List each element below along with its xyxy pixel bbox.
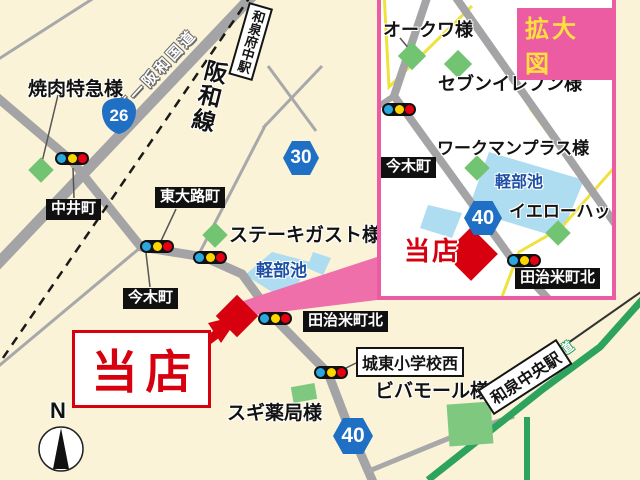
landmark-label-yellow-hat: イエローハット様 bbox=[509, 197, 616, 222]
traffic-light-icon bbox=[507, 254, 541, 267]
store-callout-box: 当店 bbox=[72, 330, 211, 408]
inset-route40-number: 40 bbox=[472, 207, 494, 230]
access-map: N 26 30 40 中井町 東大路町 今木町 田治米町北 和泉府中駅 城東小学… bbox=[0, 0, 640, 480]
inset-title: 拡大図 bbox=[517, 8, 612, 80]
inset-town-label-tajimecho-kita: 田治米町北 bbox=[515, 268, 600, 289]
inset-town-label-imakicho: 今木町 bbox=[381, 157, 436, 178]
landmark-label-workman-plus: ワークマンプラス様 bbox=[437, 134, 589, 159]
inset-enlarged-map: 40 拡大図 オークワ様 セブンイレブン様 ワークマンプラス様 軽部池 イエロー… bbox=[377, 0, 616, 300]
traffic-light-icon bbox=[382, 103, 416, 116]
inset-store-label: 当店 bbox=[404, 231, 460, 268]
landmark-label-okuwa: オークワ様 bbox=[383, 16, 473, 42]
inset-pond-label: 軽部池 bbox=[495, 168, 543, 192]
store-callout-text: 当店 bbox=[84, 336, 200, 402]
